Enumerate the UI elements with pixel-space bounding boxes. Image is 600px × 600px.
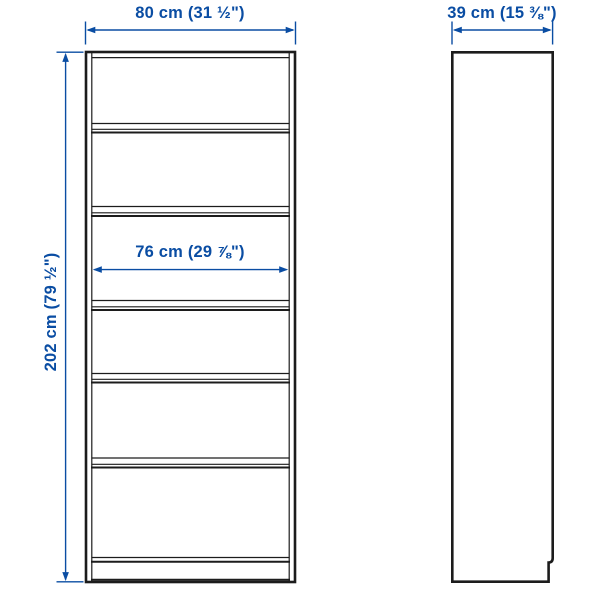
shelf-2 [92, 207, 289, 217]
shelf-bottom [92, 558, 289, 580]
interior-width-dimension-arrow [93, 266, 288, 273]
furniture-drawing [0, 0, 600, 600]
side-view [452, 52, 552, 581]
depth-dimension-arrow [452, 22, 553, 45]
shelf-1 [92, 124, 289, 133]
shelf-4 [92, 374, 289, 383]
interior-width-dimension-label: 76 cm (29 ⅞") [85, 243, 295, 261]
width-dimension-arrow [86, 22, 296, 45]
height-dimension-arrow [57, 52, 84, 582]
shelf-5 [92, 458, 289, 468]
width-dimension-label: 80 cm (31 ½") [85, 4, 295, 22]
front-view [86, 52, 295, 582]
depth-dimension-label: 39 cm (15 ⅜") [427, 4, 577, 22]
shelf-3 [92, 301, 289, 311]
height-dimension-label: 202 cm (79 ½") [42, 253, 60, 372]
dimension-diagram: 80 cm (31 ½") 39 cm (15 ⅜") 202 cm (79 ½… [0, 0, 600, 600]
dimension-lines [57, 22, 553, 582]
side-panel-outline [452, 52, 552, 581]
